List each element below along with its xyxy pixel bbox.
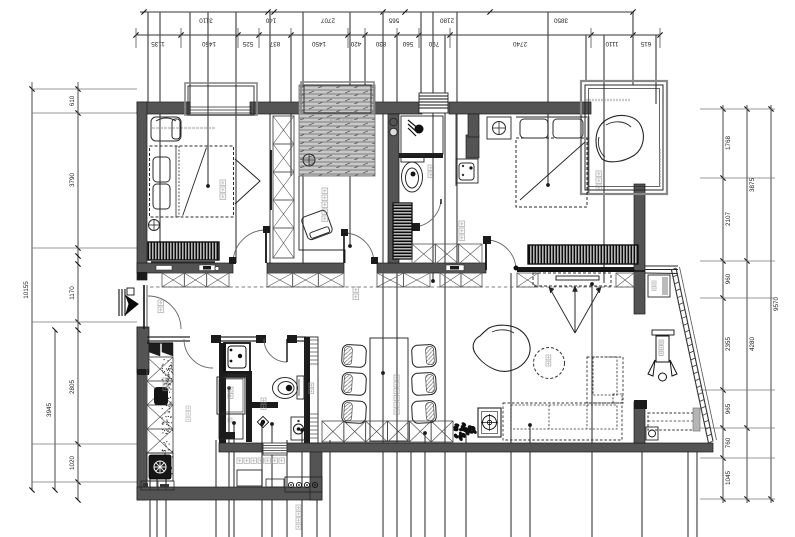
svg-text:790: 790	[428, 40, 439, 47]
svg-text:560: 560	[402, 40, 413, 47]
svg-text:1135: 1135	[151, 40, 165, 47]
svg-text:2355: 2355	[725, 337, 732, 352]
svg-text:140: 140	[265, 17, 276, 24]
svg-text:3110: 3110	[199, 17, 213, 24]
svg-text:565: 565	[388, 17, 399, 24]
svg-text:1110: 1110	[605, 40, 619, 47]
svg-text:960: 960	[725, 273, 732, 284]
svg-text:830: 830	[375, 40, 386, 47]
svg-text:2805: 2805	[69, 380, 76, 395]
svg-text:1170: 1170	[69, 286, 76, 300]
svg-text:1768: 1768	[725, 136, 732, 151]
svg-text:2107: 2107	[725, 212, 732, 227]
svg-text:1020: 1020	[69, 456, 76, 471]
svg-text:3790: 3790	[69, 173, 76, 188]
svg-text:2180: 2180	[440, 17, 455, 24]
svg-text:1045: 1045	[725, 471, 732, 486]
svg-text:615: 615	[640, 40, 651, 47]
svg-text:2740: 2740	[513, 40, 528, 47]
svg-text:420: 420	[350, 40, 361, 47]
svg-text:837: 837	[269, 40, 280, 47]
svg-text:760: 760	[725, 437, 732, 448]
svg-text:3875: 3875	[749, 178, 756, 193]
svg-text:1450: 1450	[202, 40, 217, 47]
svg-text:10155: 10155	[23, 281, 30, 299]
svg-text:965: 965	[725, 403, 732, 414]
svg-text:3945: 3945	[46, 403, 53, 418]
svg-text:525: 525	[242, 40, 253, 47]
svg-text:2707: 2707	[321, 17, 336, 24]
svg-text:3850: 3850	[554, 17, 569, 24]
svg-text:1450: 1450	[312, 40, 327, 47]
svg-text:9570: 9570	[773, 297, 780, 312]
svg-text:610: 610	[69, 95, 76, 106]
svg-text:4280: 4280	[749, 337, 756, 352]
